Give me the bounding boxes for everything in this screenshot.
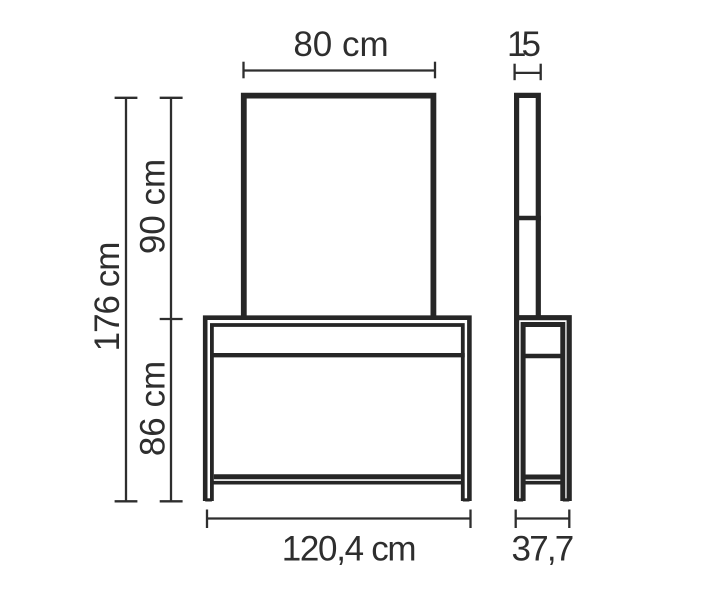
svg-text:120,4 cm: 120,4 cm [282,530,416,569]
svg-text:176 cm: 176 cm [88,243,127,352]
svg-text:80 cm: 80 cm [293,25,388,64]
svg-text:37,7: 37,7 [512,530,573,569]
svg-text:86 cm: 86 cm [134,361,173,456]
svg-text:90 cm: 90 cm [134,159,173,254]
svg-text:15: 15 [507,25,539,64]
